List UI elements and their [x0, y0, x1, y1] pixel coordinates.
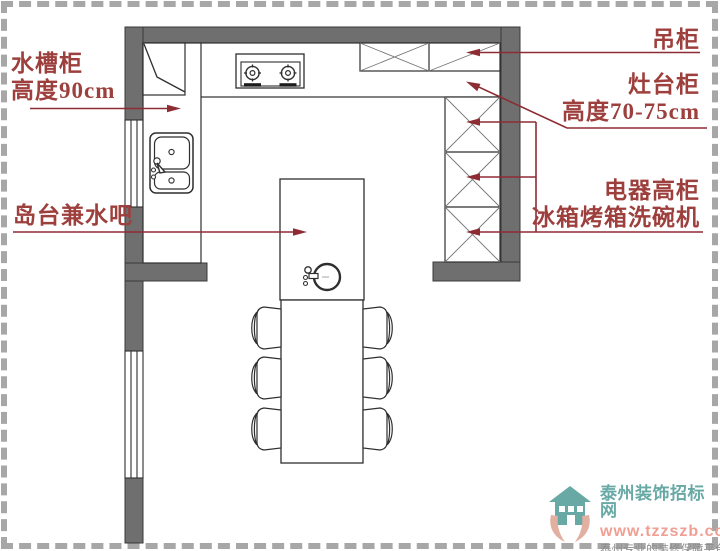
hanging-cabinet	[360, 43, 500, 71]
label-stove-cabinet: 灶台柜 高度70-75cm	[562, 71, 700, 125]
wall-right	[501, 27, 520, 281]
chair-right-2	[363, 357, 392, 399]
label-appliance-cabinet: 电器高柜 冰箱烤箱洗碗机	[532, 177, 700, 231]
chair-right-3	[363, 408, 392, 450]
double-sink-icon	[150, 133, 193, 193]
label-sink-cabinet-height: 高度90cm	[11, 77, 115, 104]
watermark-tagline: 泰州专业的装修保障平台	[600, 545, 712, 551]
label-stove-cabinet-name: 灶台柜	[562, 71, 700, 98]
wall-left-stub	[125, 263, 207, 281]
watermark-text: 泰州装饰招标网 www.tzzszb.com 泰州专业的装修保障平台	[600, 485, 712, 551]
wall-top	[125, 27, 520, 43]
label-sink-cabinet-name: 水槽柜	[11, 50, 115, 77]
wall-left-lower	[125, 281, 143, 351]
chair-left-2	[252, 357, 281, 399]
wall-left-bottom	[125, 478, 143, 543]
window-upper	[125, 120, 143, 207]
label-sink-cabinet: 水槽柜 高度90cm	[11, 50, 115, 104]
dining-set	[252, 300, 393, 463]
wall-bottom-right	[433, 262, 520, 281]
kitchen-floor-plan-page: 水槽柜 高度90cm 岛台兼水吧 吊柜 灶台柜 高度70-75cm 电器高柜 冰…	[0, 0, 720, 551]
chair-left-3	[252, 408, 281, 450]
label-appliance-cabinet-name: 电器高柜	[532, 177, 700, 204]
label-hanging-cabinet: 吊柜	[652, 26, 700, 53]
corner-cabinet	[143, 43, 185, 95]
gas-stove-icon	[236, 54, 304, 88]
island-water-bar	[280, 179, 364, 300]
label-appliance-cabinet-contents: 冰箱烤箱洗碗机	[532, 204, 700, 231]
label-stove-cabinet-height: 高度70-75cm	[562, 98, 700, 125]
dining-table	[281, 300, 363, 463]
label-island-bar: 岛台兼水吧	[13, 202, 133, 229]
chair-right-1	[363, 307, 392, 349]
watermark-url: www.tzzszb.com	[600, 524, 712, 540]
wall-left-upper	[125, 27, 143, 120]
chair-left-1	[252, 307, 281, 349]
watermark-logo-house-in-hands-icon	[547, 485, 593, 543]
watermark-site-name: 泰州装饰招标网	[600, 485, 712, 519]
window-lower	[125, 351, 143, 478]
